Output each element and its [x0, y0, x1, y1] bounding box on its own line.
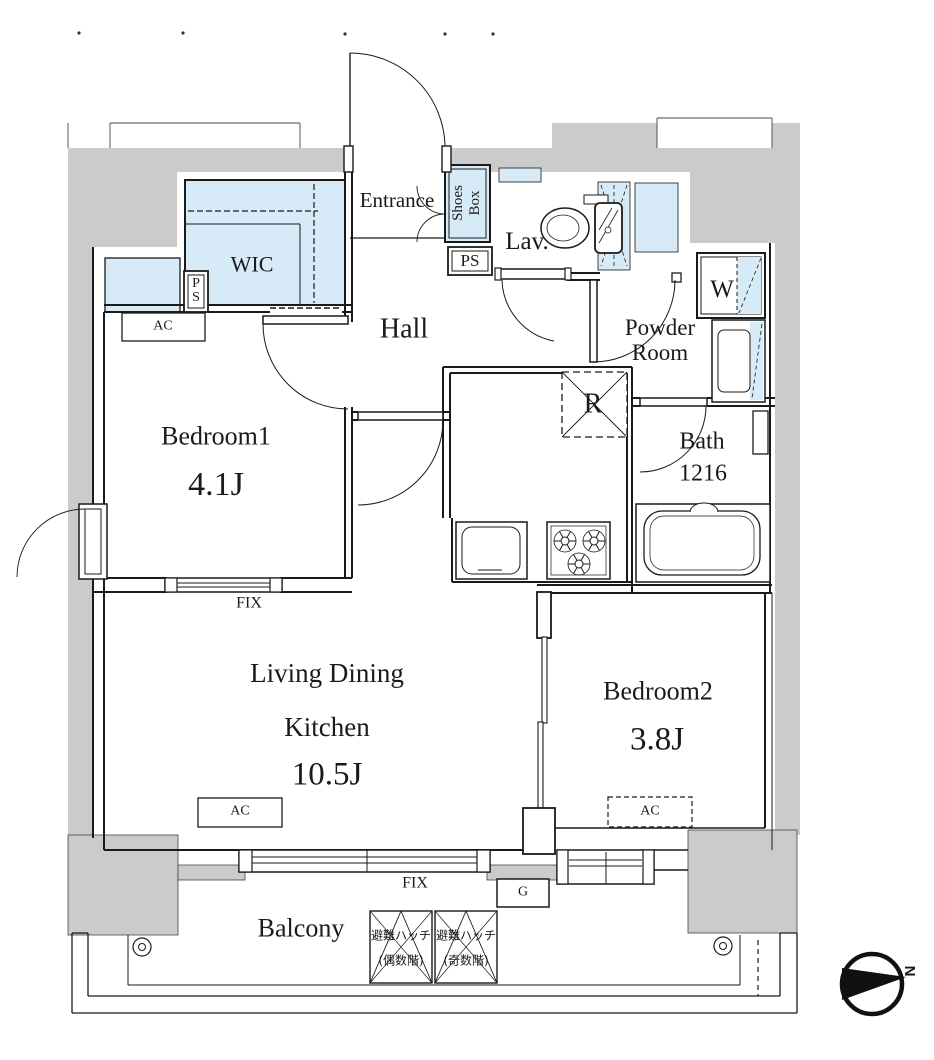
ac-niche: [105, 258, 180, 312]
escape-hatch-odd: [435, 911, 497, 983]
compass-icon: [842, 954, 906, 1014]
survey-dots: [77, 31, 494, 35]
label-fix-1: FIX: [236, 596, 262, 613]
label-wic: WIC: [231, 252, 274, 275]
label-bedroom2-size: 3.8J: [630, 723, 684, 758]
lav-window: [499, 168, 541, 182]
label-bath: Bath: [679, 429, 724, 454]
escape-hatch-even: [370, 911, 432, 983]
label-hatch-odd-2: (奇数階): [443, 955, 488, 968]
kitchen-fixtures: [452, 372, 632, 582]
lav-door-arc: [502, 280, 554, 341]
drain-icon: [714, 937, 732, 955]
label-hatch-even-1: 避難ハッチ: [371, 930, 431, 943]
bath-door-leaf: [640, 398, 707, 406]
toilet-icon: [541, 195, 622, 253]
label-powder-room: Powder Room: [600, 315, 720, 365]
powder-door-leaf: [590, 280, 597, 362]
label-hall: Hall: [380, 314, 428, 343]
drain-icon: [133, 938, 151, 956]
label-refrigerator: R: [584, 389, 603, 418]
wic-floor: [185, 180, 345, 305]
bedroom1-door-arc: [263, 324, 348, 409]
label-compass-north: N: [901, 966, 917, 977]
floor-plan: Entrance Shoes Box PS PS Lav. WIC Hall P…: [0, 0, 934, 1060]
lav-door-leaf: [499, 269, 567, 279]
bedroom1-west-window: [79, 504, 107, 579]
label-ps-wic: PS: [190, 277, 202, 305]
bedroom2-partition: [523, 592, 555, 854]
bedroom2-sliding-door: [542, 637, 547, 723]
label-hatch-even-2: (偶数階): [378, 955, 423, 968]
fix-window-2: [239, 850, 490, 872]
ldk-door-arc: [358, 420, 443, 505]
label-ac-bedroom1: AC: [153, 320, 172, 335]
label-ps-entrance: PS: [461, 252, 480, 270]
entrance-door-arc: [350, 53, 445, 148]
label-bedroom1-size: 4.1J: [188, 467, 244, 503]
label-lav: Lav.: [505, 229, 549, 255]
label-ldk-line1: Living Dining: [250, 659, 404, 687]
ldk-door-leaf: [358, 412, 443, 420]
bedroom1-door-leaf: [263, 316, 348, 324]
neighbour-wall-marks: [68, 118, 772, 148]
label-hatch-odd-1: 避難ハッチ: [436, 930, 496, 943]
label-balcony: Balcony: [258, 914, 345, 941]
label-bedroom1: Bedroom1: [161, 422, 271, 449]
label-shoes-box: Shoes Box: [450, 177, 484, 229]
floorplan-drawing: [0, 0, 934, 1060]
powder-duct: [635, 183, 678, 252]
label-entrance: Entrance: [360, 189, 435, 211]
label-fix-2: FIX: [402, 876, 428, 893]
label-ldk-line2: Kitchen: [284, 713, 369, 741]
label-bath-size: 1216: [679, 461, 727, 486]
label-ac-bedroom2: AC: [640, 805, 659, 820]
fix-window-1: [165, 578, 282, 592]
label-bedroom2: Bedroom2: [603, 677, 713, 704]
label-ac-ldk: AC: [230, 805, 249, 820]
label-ldk-size: 10.5J: [292, 758, 363, 793]
label-washer: W: [710, 277, 734, 303]
stove: [547, 522, 610, 579]
label-gas-meter: G: [518, 886, 528, 901]
